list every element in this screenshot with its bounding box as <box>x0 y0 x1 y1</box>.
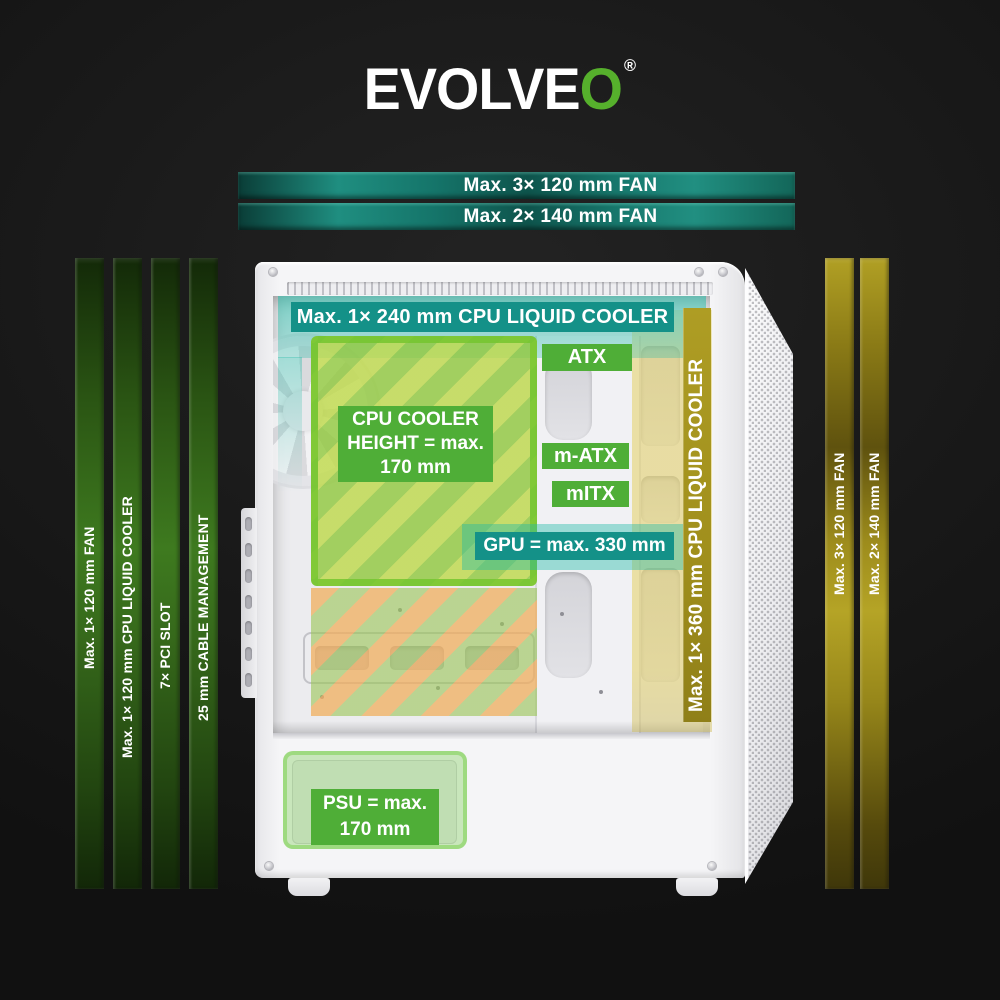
label-front-liquid-cooler: Max. 1× 360 mm CPU LIQUID COOLER <box>683 308 711 722</box>
banner-rear-liquid-cooler: Max. 1× 120 mm CPU LIQUID COOLER <box>113 258 142 889</box>
label-text: m-ATX <box>554 445 617 468</box>
banner-front-140mm-fans: Max. 2× 140 mm FAN <box>860 258 889 889</box>
banner-pci-slots: 7× PCI SLOT <box>151 258 180 889</box>
banner-label: Max. 3× 120 mm FAN <box>832 453 847 596</box>
screw-dot <box>560 612 564 616</box>
screw-icon <box>695 268 703 276</box>
top-vent-strip <box>287 282 713 295</box>
banner-label: Max. 3× 120 mm FAN <box>464 175 658 197</box>
label-gpu-length: GPU = max. 330 mm <box>475 532 674 560</box>
label-text: Max. 1× 360 mm CPU LIQUID COOLER <box>687 359 707 712</box>
front-mesh-panel <box>745 262 793 886</box>
banner-label: Max. 2× 140 mm FAN <box>464 206 658 228</box>
tray-cutout <box>545 572 592 678</box>
logo-accent-letter: O <box>580 57 622 122</box>
banner-top-120mm-fans: Max. 3× 120 mm FAN <box>238 172 795 199</box>
label-line: 170 mm <box>380 456 451 480</box>
pci-slot-hole <box>245 517 252 531</box>
pci-slot-hole <box>245 647 252 661</box>
pci-slot-hole <box>245 673 252 687</box>
rear-radiator-zone <box>278 357 302 492</box>
case-spec-infographic: EVOLVEO® Max. 3× 120 mm FAN Max. 2× 140 … <box>0 0 1000 1000</box>
banner-label: Max. 1× 120 mm CPU LIQUID COOLER <box>120 496 135 758</box>
brand-logo: EVOLVEO® <box>0 56 1000 123</box>
banner-cable-management: 25 mm CABLE MANAGEMENT <box>189 258 218 889</box>
registered-mark-icon: ® <box>624 56 636 75</box>
label-text: Max. 1× 240 mm CPU LIQUID COOLER <box>297 306 669 329</box>
label-mitx: mITX <box>552 481 629 507</box>
label-text: mITX <box>566 483 615 506</box>
label-line: HEIGHT = max. <box>347 432 484 456</box>
pci-slot-hole <box>245 621 252 635</box>
banner-rear-fan: Max. 1× 120 mm FAN <box>75 258 104 889</box>
label-cpu-cooler-height: CPU COOLER HEIGHT = max. 170 mm <box>338 406 493 482</box>
pci-slot-hole <box>245 543 252 557</box>
logo-text: EVOLVE <box>364 57 580 122</box>
banner-top-140mm-fans: Max. 2× 140 mm FAN <box>238 203 795 230</box>
screw-icon <box>719 268 727 276</box>
banner-label: Max. 2× 140 mm FAN <box>867 453 882 596</box>
pci-slot-hole <box>245 569 252 583</box>
label-m-atx: m-ATX <box>542 443 629 469</box>
label-psu-length: PSU = max. 170 mm <box>311 789 439 845</box>
label-top-liquid-cooler: Max. 1× 240 mm CPU LIQUID COOLER <box>291 302 674 332</box>
pci-slot-hole <box>245 595 252 609</box>
label-text: ATX <box>568 346 607 369</box>
screw-dot <box>599 690 603 694</box>
label-line: CPU COOLER <box>352 408 479 432</box>
label-line: PSU = max. <box>323 791 427 817</box>
screw-icon <box>265 862 273 870</box>
case-foot <box>676 878 718 896</box>
banner-label: Max. 1× 120 mm FAN <box>82 527 97 670</box>
label-line: 170 mm <box>340 817 411 843</box>
psu-shroud-edge <box>273 733 710 739</box>
pci-slot-bracket <box>241 508 257 698</box>
cable-management-zone <box>311 588 537 716</box>
banner-label: 25 mm CABLE MANAGEMENT <box>196 514 211 721</box>
case-foot <box>288 878 330 896</box>
banner-label: 7× PCI SLOT <box>158 602 173 689</box>
banner-front-120mm-fans: Max. 3× 120 mm FAN <box>825 258 854 889</box>
screw-icon <box>708 862 716 870</box>
label-text: GPU = max. 330 mm <box>483 535 665 557</box>
label-atx: ATX <box>542 344 632 371</box>
screw-icon <box>269 268 277 276</box>
